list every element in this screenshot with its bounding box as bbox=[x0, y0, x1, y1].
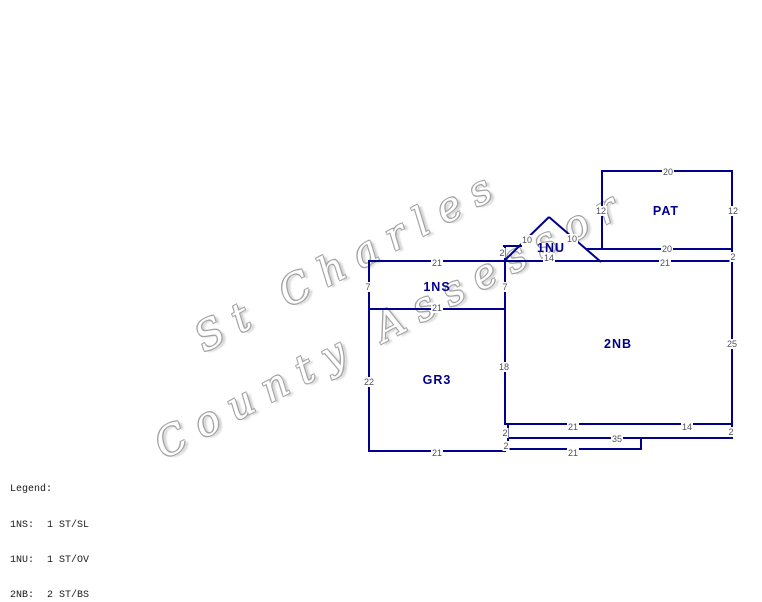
dimension-label: 7 bbox=[501, 282, 508, 292]
dimension-label: 20 bbox=[661, 244, 673, 254]
dimension-label: 14 bbox=[681, 422, 693, 432]
dimension-label: 2 bbox=[498, 248, 505, 258]
sketch-canvas: St Charles County Assessor PAT 1NU 1NS 2… bbox=[0, 0, 762, 602]
dimension-label: 21 bbox=[567, 422, 579, 432]
dimension-label: 21 bbox=[431, 303, 443, 313]
region-label-gr3: GR3 bbox=[423, 373, 452, 387]
legend-row: 1NU:1 ST/OV bbox=[10, 555, 203, 567]
dimension-label: 21 bbox=[431, 448, 443, 458]
legend-code: 2NB: bbox=[10, 590, 47, 602]
region-label-2nb: 2NB bbox=[604, 337, 632, 351]
dimension-label: 18 bbox=[498, 362, 510, 372]
dimension-label: 2 bbox=[729, 252, 736, 262]
dimension-label: 2 bbox=[502, 441, 509, 451]
dimension-label: 10 bbox=[566, 234, 578, 244]
legend-row: 1NS:1 ST/SL bbox=[10, 520, 203, 532]
dimension-label: 20 bbox=[662, 167, 674, 177]
legend-desc: 2 ST/BS bbox=[47, 590, 89, 601]
dimension-label: 25 bbox=[726, 339, 738, 349]
dimension-label: 12 bbox=[595, 206, 607, 216]
dimension-label: 22 bbox=[363, 377, 375, 387]
dimension-label: 21 bbox=[567, 448, 579, 458]
dimension-label: 2 bbox=[501, 428, 508, 438]
legend: Legend: 1NS:1 ST/SL 1NU:1 ST/OV 2NB:2 ST… bbox=[10, 461, 203, 602]
region-label-pat: PAT bbox=[653, 204, 679, 218]
dimension-label: 21 bbox=[659, 258, 671, 268]
dimension-label: 12 bbox=[727, 206, 739, 216]
dimension-label: 10 bbox=[521, 235, 533, 245]
dimension-label: 2 bbox=[727, 427, 734, 437]
legend-row: 2NB:2 ST/BS bbox=[10, 590, 203, 602]
legend-code: 1NS: bbox=[10, 520, 47, 532]
dimension-label: 7 bbox=[364, 282, 371, 292]
dimension-label: 21 bbox=[431, 258, 443, 268]
region-label-1nu: 1NU bbox=[537, 241, 565, 255]
dimension-label: 35 bbox=[611, 434, 623, 444]
region-label-1ns: 1NS bbox=[423, 280, 450, 294]
legend-desc: 1 ST/SL bbox=[47, 520, 89, 531]
legend-code: 1NU: bbox=[10, 555, 47, 567]
legend-desc: 1 ST/OV bbox=[47, 555, 89, 566]
legend-title: Legend: bbox=[10, 484, 203, 496]
